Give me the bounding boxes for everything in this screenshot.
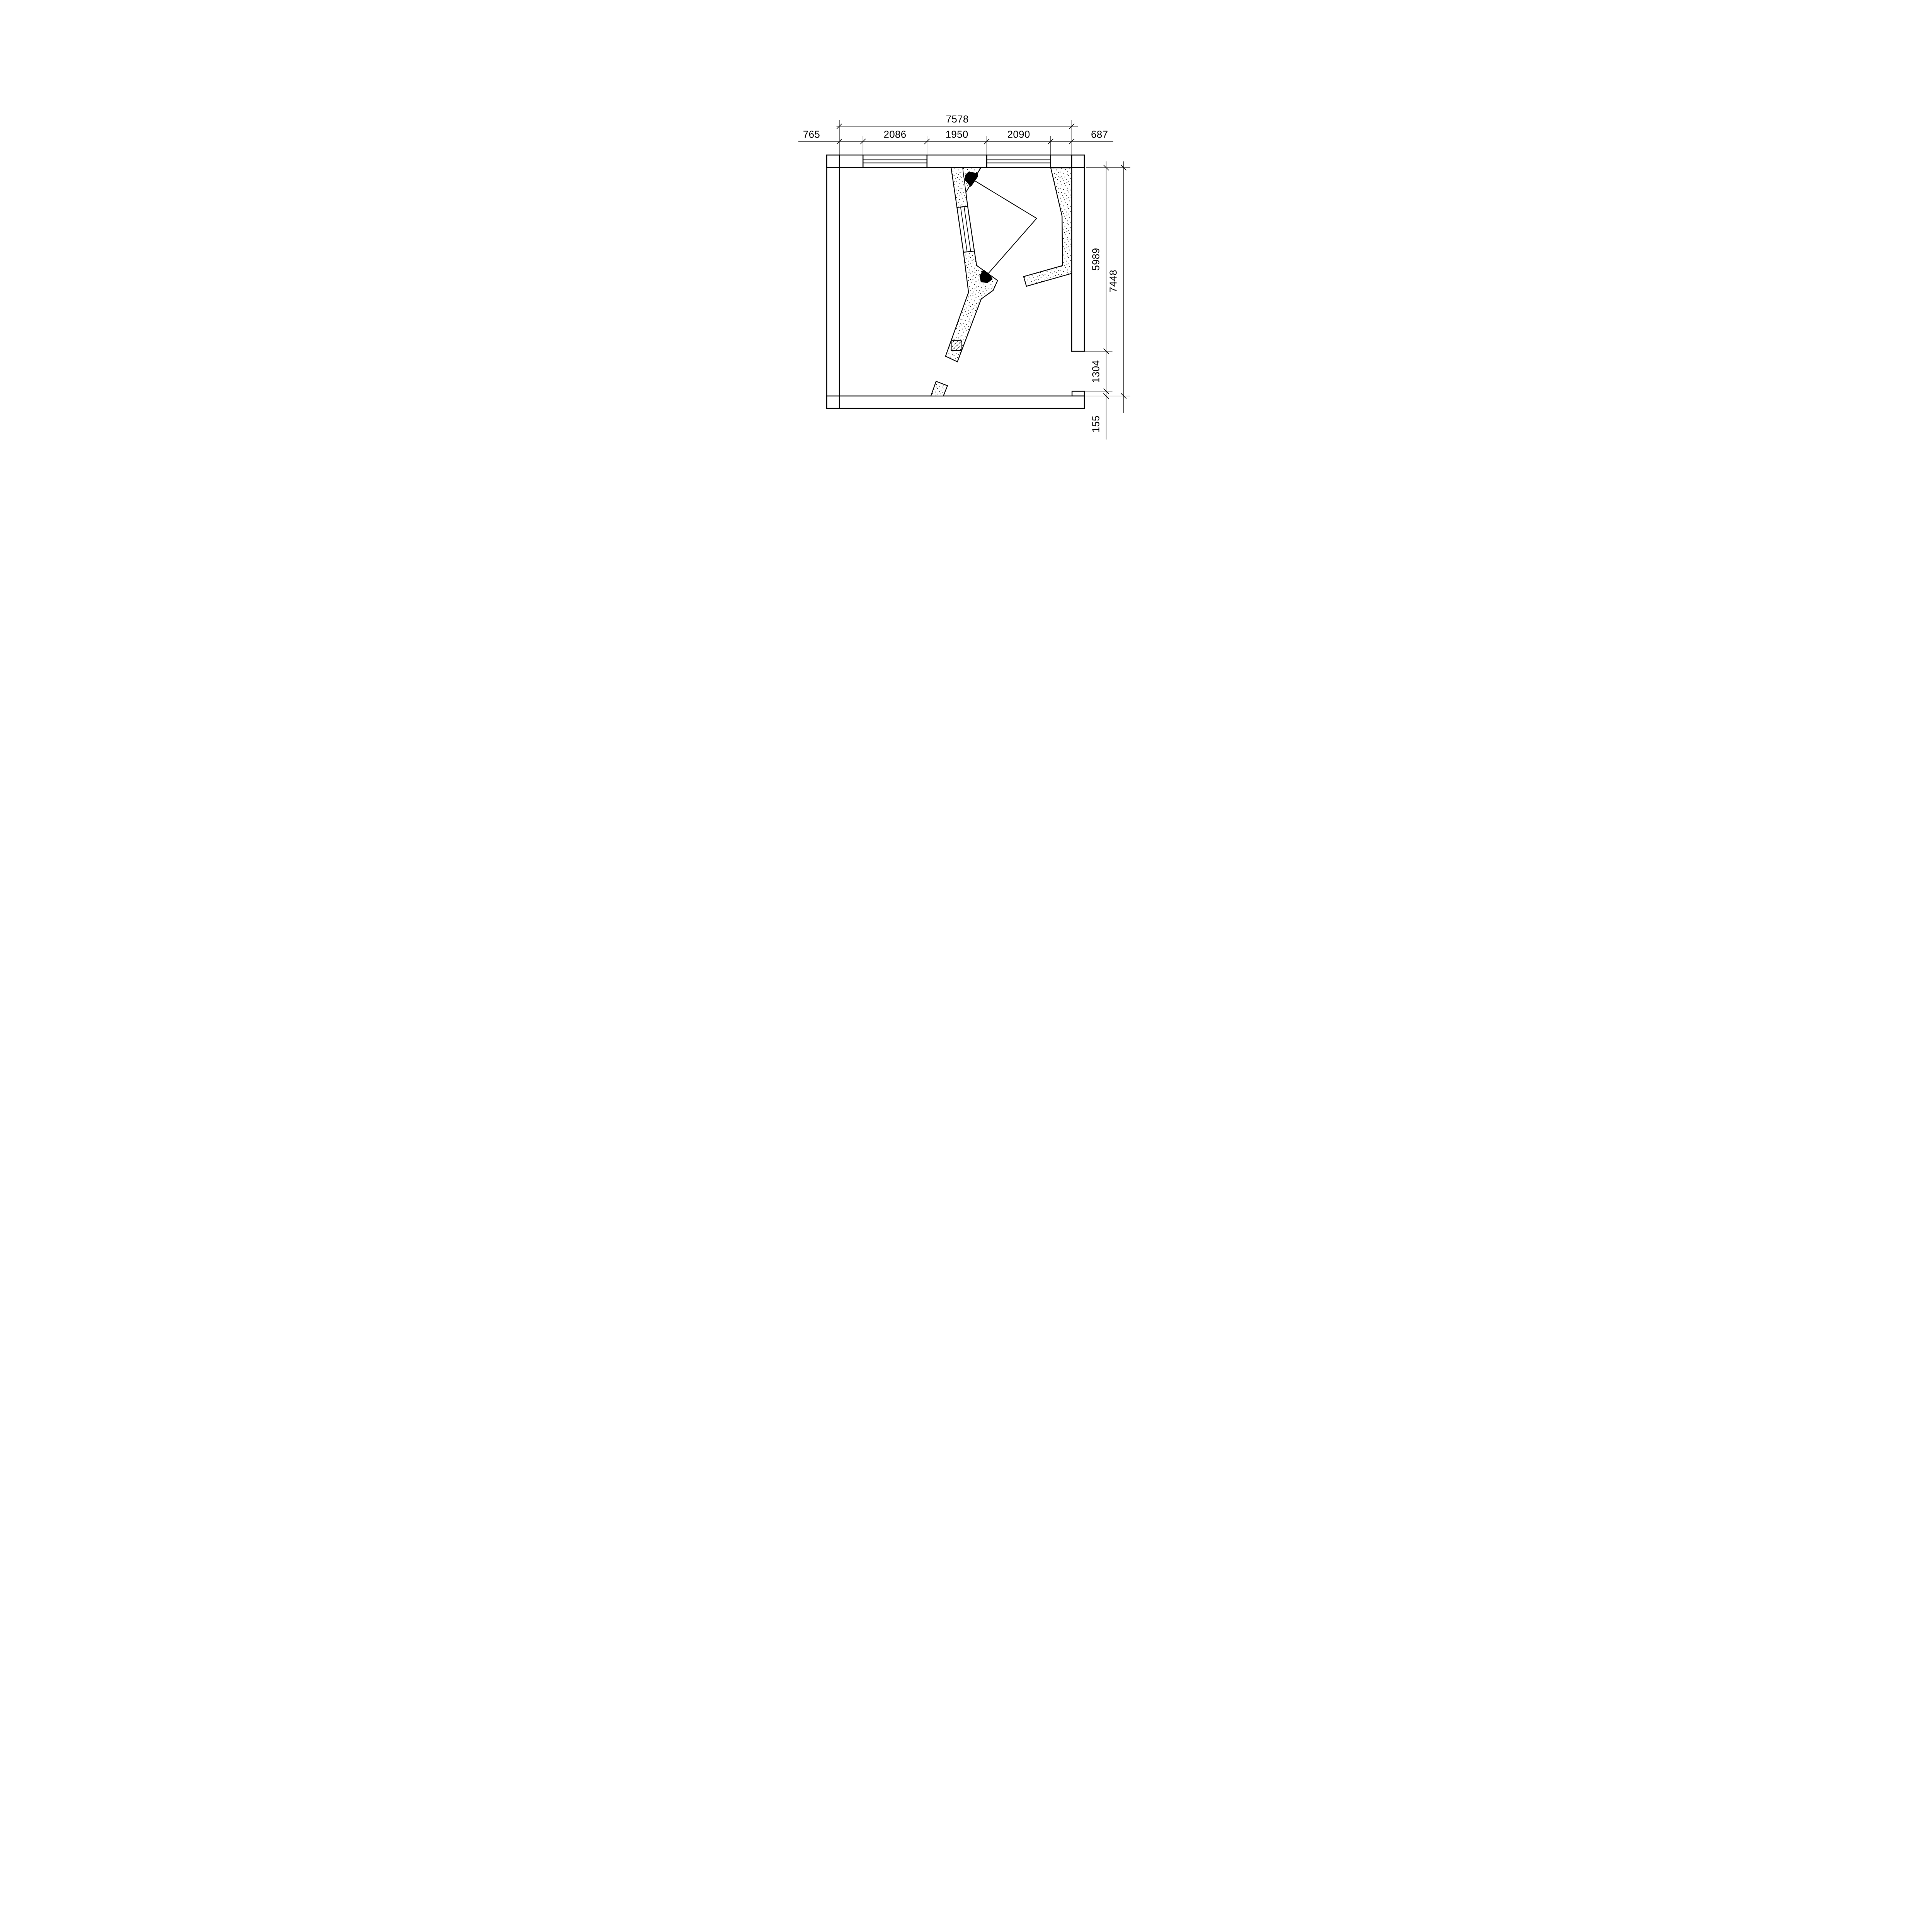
left-wall [827, 155, 839, 408]
dim-label-687: 687 [1091, 129, 1108, 140]
dim-label-right-total: 7448 [1108, 270, 1119, 293]
dim-label-1950: 1950 [946, 129, 968, 140]
stub-wall [931, 381, 948, 396]
dim-label-5989: 5989 [1091, 248, 1101, 271]
top-wall-pier-left [827, 155, 863, 168]
dim-label-2090: 2090 [1007, 129, 1030, 140]
windows [863, 155, 1051, 168]
dim-label-1304: 1304 [1091, 360, 1101, 383]
drawing-sheet: 7578 765 2086 1950 2090 687 5989 1304 15… [765, 0, 1151, 547]
top-wall-pier-right [1051, 155, 1084, 168]
dimension-right: 5989 1304 155 7448 [1085, 162, 1130, 440]
bottom-wall [827, 396, 1084, 408]
column [951, 340, 961, 350]
dim-label-top-total: 7578 [946, 114, 969, 125]
dim-label-765: 765 [803, 129, 820, 140]
window-2 [987, 155, 1050, 168]
dimension-top: 7578 765 2086 1950 2090 687 [798, 114, 1113, 168]
sight-lines [974, 180, 1037, 274]
interior-partitions [931, 167, 1072, 396]
bottom-right-step-pier [1072, 391, 1084, 396]
dim-label-2086: 2086 [884, 129, 907, 140]
dim-label-155: 155 [1091, 415, 1101, 432]
right-lining-wall [1024, 168, 1072, 286]
window-1-glazing-lines [863, 160, 927, 163]
view-wedge-icon-bottom [980, 270, 992, 282]
top-wall-pier-middle [927, 155, 987, 168]
window-2-glazing-lines [987, 160, 1050, 163]
right-wall [1072, 155, 1084, 351]
window-1 [863, 155, 927, 168]
floor-plan-canvas: 7578 765 2086 1950 2090 687 5989 1304 15… [765, 0, 1151, 547]
partition-glazed-section [957, 206, 974, 252]
